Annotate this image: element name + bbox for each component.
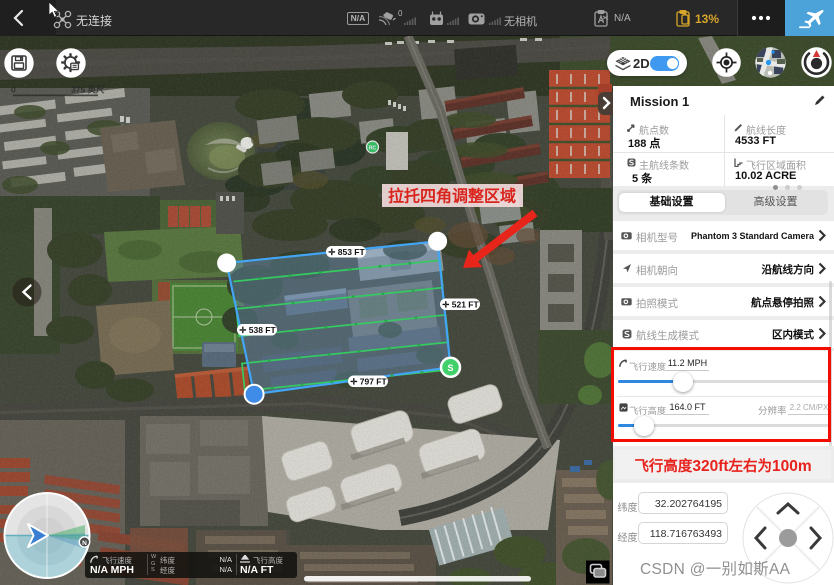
svg-text:N: N [82, 540, 87, 547]
svg-text:✛ 797 FT: ✛ 797 FT [350, 377, 387, 387]
svg-text:✛ 853 FT: ✛ 853 FT [328, 247, 365, 257]
svg-text:375 英尺: 375 英尺 [71, 85, 105, 95]
svg-text:0: 0 [11, 85, 16, 95]
svg-text:S: S [447, 363, 453, 373]
svg-text:拉托四角调整区域: 拉托四角调整区域 [388, 187, 516, 206]
svg-text:✛ 521 FT: ✛ 521 FT [442, 300, 479, 310]
svg-text:✛ 538 FT: ✛ 538 FT [239, 325, 276, 335]
